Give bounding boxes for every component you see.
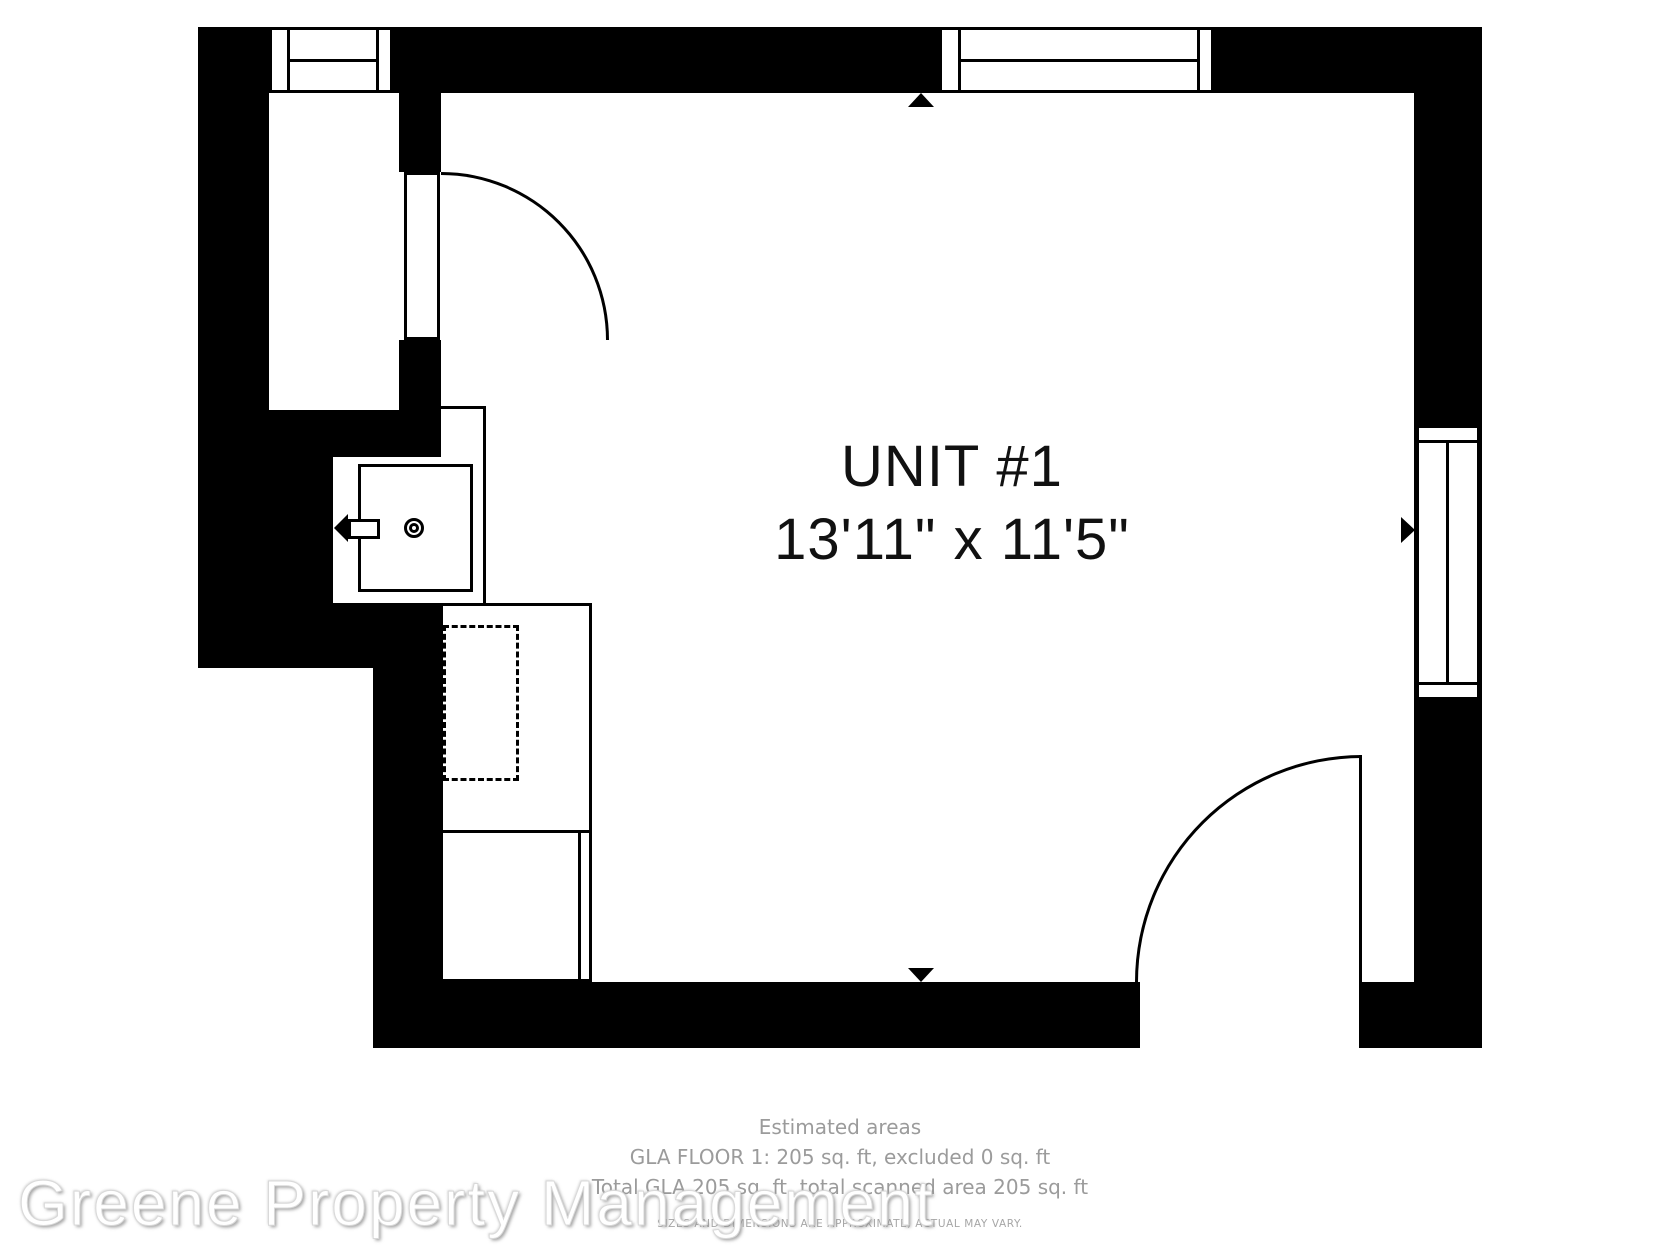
estimated-areas-label: Estimated areas [340, 1112, 1340, 1142]
wall-midpoint-arrow-right [1401, 517, 1415, 543]
closet-alcove [266, 93, 399, 413]
window-top-right-midline [961, 59, 1197, 62]
base-cabinet [440, 830, 592, 982]
door-swing-arc-left [441, 172, 609, 340]
wall-left-upper [198, 27, 266, 413]
faucet-shaft [348, 519, 380, 539]
unit-dimensions: 13'11" x 11'5" [602, 503, 1302, 576]
window-top-left-cap-r [376, 30, 379, 90]
door-leaf-left [404, 172, 440, 340]
unit-label-block: UNIT #1 13'11" x 11'5" [602, 430, 1302, 576]
unit-title: UNIT #1 [602, 430, 1302, 503]
wall-door-jamb-lower [399, 340, 441, 457]
wall-left-lower [373, 668, 440, 982]
window-top-right-cap-r [1197, 30, 1200, 90]
window-right-midline [1446, 443, 1449, 682]
sink-drain-inner-circle [409, 523, 419, 533]
wall-left-band-lower [198, 603, 440, 668]
door-swing-arc-bottom [1135, 755, 1362, 982]
window-top-left-midline [290, 59, 376, 62]
door-opening-bottom [1137, 982, 1362, 1048]
wall-midpoint-arrow-up [908, 93, 934, 107]
wall-left-mid [198, 457, 333, 603]
floor-plan-canvas: UNIT #1 13'11" x 11'5" Estimated areas G… [0, 0, 1680, 1260]
watermark-text: Greene Property Management [18, 1166, 934, 1240]
wall-midpoint-arrow-down [908, 968, 934, 982]
base-cabinet-front-line [578, 833, 581, 979]
faucet-arrow-icon [334, 514, 348, 542]
wall-door-jamb-upper [399, 93, 441, 172]
window-right-cap-bottom [1419, 682, 1477, 685]
dashed-appliance-icon [443, 625, 519, 781]
